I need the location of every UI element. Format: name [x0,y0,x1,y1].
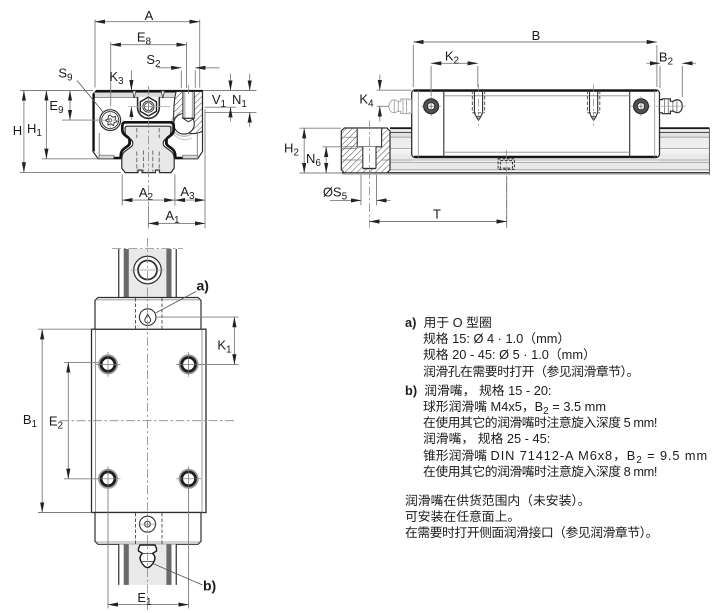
svg-text:A: A [145,8,154,23]
svg-text:A3: A3 [180,184,195,202]
svg-text:B: B [532,28,541,43]
svg-text:H1: H1 [27,121,42,139]
svg-text:N6: N6 [306,151,321,169]
svg-text:K2: K2 [445,49,460,67]
svg-text:a): a) [197,278,209,294]
svg-text:H2: H2 [284,140,299,158]
svg-text:E2: E2 [49,414,64,432]
svg-text:T: T [433,206,441,221]
svg-text:K4: K4 [359,91,374,109]
svg-text:K1: K1 [217,337,232,355]
svg-text:ØS5: ØS5 [323,185,348,203]
svg-text:H: H [13,123,22,138]
svg-text:B1: B1 [23,412,38,430]
svg-text:K3: K3 [109,69,124,87]
svg-text:S2: S2 [146,52,161,70]
svg-text:E9: E9 [49,98,64,116]
svg-text:E1: E1 [137,590,152,608]
svg-text:S9: S9 [58,66,73,84]
svg-text:b): b) [203,578,216,594]
svg-text:B2: B2 [659,50,674,68]
